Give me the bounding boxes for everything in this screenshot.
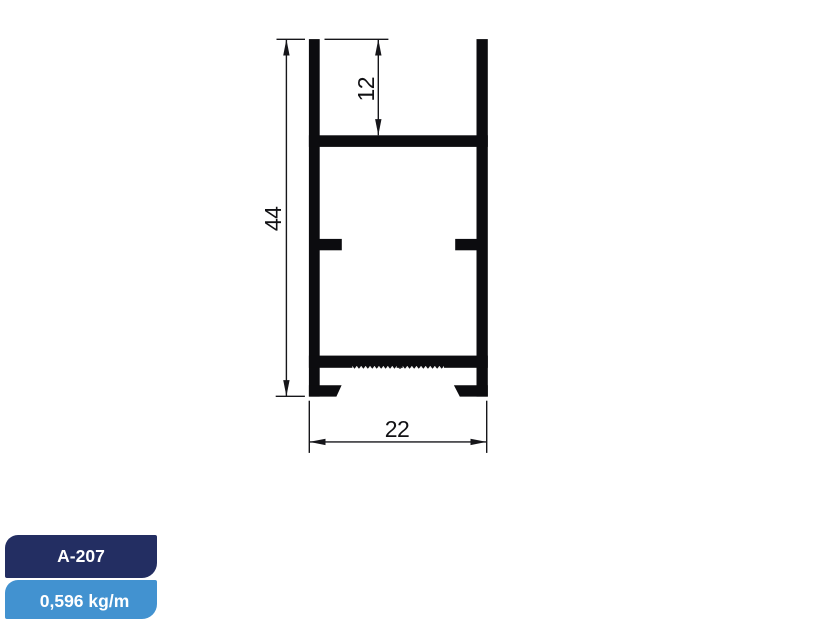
svg-text:44: 44: [260, 206, 286, 231]
svg-text:22: 22: [385, 416, 409, 442]
svg-text:12: 12: [353, 77, 379, 101]
